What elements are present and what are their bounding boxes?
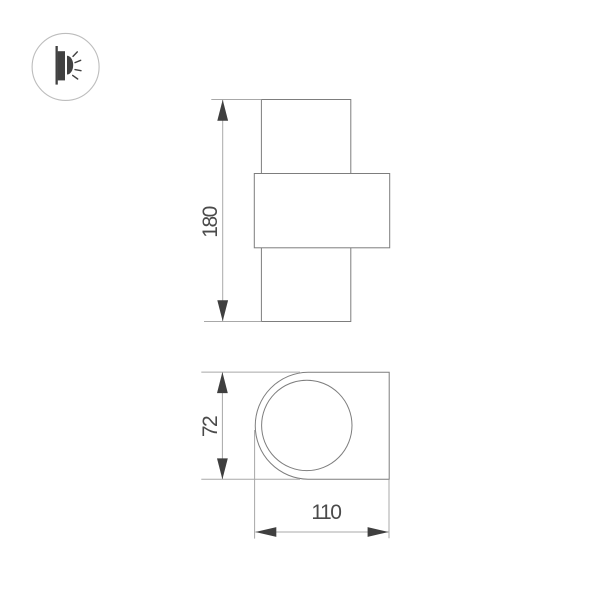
svg-text:180: 180 [199,206,222,237]
svg-text:110: 110 [311,501,341,524]
svg-text:72: 72 [199,416,222,437]
